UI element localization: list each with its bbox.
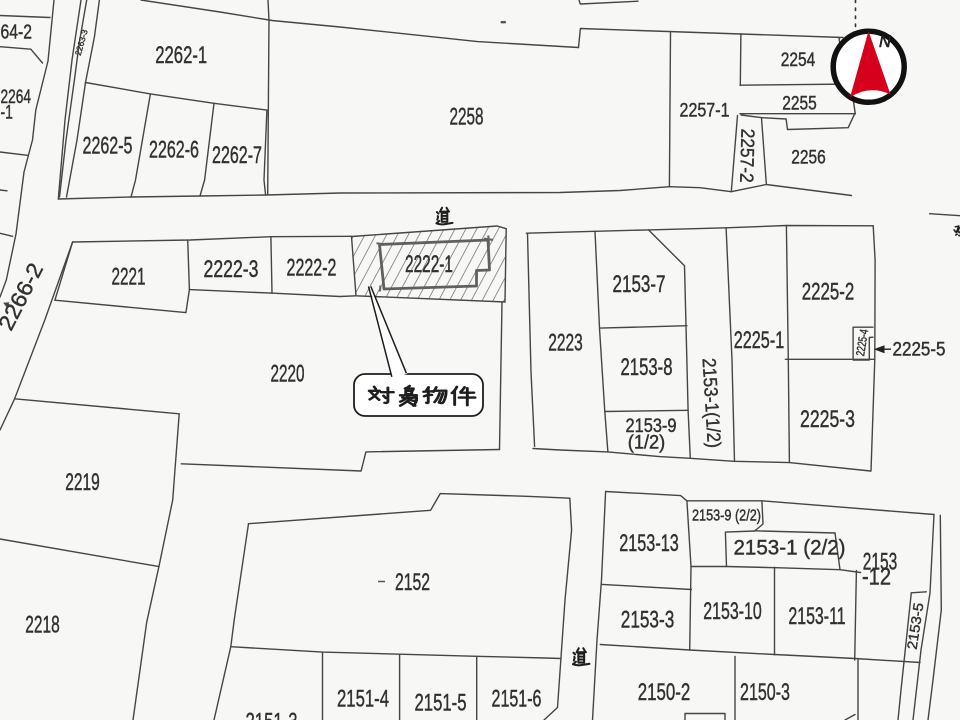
svg-text:-12: -12 <box>862 563 891 590</box>
svg-text:-1: -1 <box>1 101 14 123</box>
svg-text:2153-10: 2153-10 <box>703 599 761 625</box>
svg-text:2262-1: 2262-1 <box>155 42 207 69</box>
svg-text:2225-3: 2225-3 <box>800 406 855 432</box>
svg-text:2150-3: 2150-3 <box>740 680 790 706</box>
svg-text:2153-3: 2153-3 <box>621 607 674 633</box>
svg-text:2262-5: 2262-5 <box>83 134 133 160</box>
svg-text:2258: 2258 <box>449 104 483 130</box>
svg-text:2153-9 (2/2): 2153-9 (2/2) <box>692 507 761 525</box>
svg-text:2257-2: 2257-2 <box>736 128 758 183</box>
svg-text:2255: 2255 <box>782 92 816 114</box>
svg-text:2254: 2254 <box>781 48 816 70</box>
svg-text:2152: 2152 <box>395 570 430 596</box>
svg-text:2222-3: 2222-3 <box>204 256 259 282</box>
svg-text:2222-1: 2222-1 <box>405 252 453 278</box>
svg-text:2153-8: 2153-8 <box>621 354 673 381</box>
svg-text:2153-11: 2153-11 <box>788 604 845 630</box>
svg-text:2151-4: 2151-4 <box>337 686 389 713</box>
svg-text:N: N <box>879 33 891 51</box>
svg-text:2221: 2221 <box>111 264 145 290</box>
svg-text:2219: 2219 <box>65 470 99 496</box>
svg-text:2153-1 (2/2): 2153-1 (2/2) <box>733 536 845 559</box>
svg-text:(1/2): (1/2) <box>628 431 665 453</box>
svg-text:2225-1: 2225-1 <box>734 327 784 354</box>
svg-text:2262-7: 2262-7 <box>212 143 262 169</box>
svg-text:2151-5: 2151-5 <box>415 690 467 717</box>
svg-text:2223: 2223 <box>548 330 582 356</box>
svg-text:2222-2: 2222-2 <box>287 256 337 282</box>
svg-text:2153-7: 2153-7 <box>613 271 666 298</box>
svg-text:2150-2: 2150-2 <box>638 679 691 706</box>
svg-text:2256: 2256 <box>791 146 825 168</box>
svg-text:2151-6: 2151-6 <box>492 687 542 713</box>
svg-text:2151-3: 2151-3 <box>246 709 298 720</box>
svg-text:2153-13: 2153-13 <box>619 530 679 557</box>
svg-text:2225-5: 2225-5 <box>893 339 946 360</box>
svg-text:2218: 2218 <box>25 612 59 638</box>
svg-text:2225-2: 2225-2 <box>802 279 855 306</box>
svg-text:64-2: 64-2 <box>1 21 32 43</box>
svg-text:2257-1: 2257-1 <box>680 99 730 121</box>
svg-text:2220: 2220 <box>270 361 304 387</box>
svg-text:2262-6: 2262-6 <box>149 138 199 164</box>
